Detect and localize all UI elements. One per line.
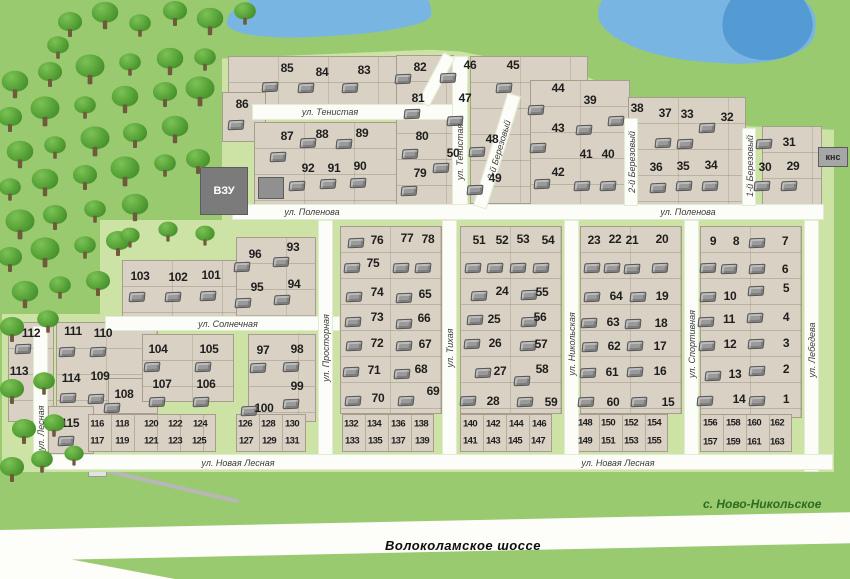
tree-trunk bbox=[138, 30, 142, 37]
tree-trunk bbox=[43, 258, 48, 268]
plot-number: 93 bbox=[287, 240, 300, 254]
plot-number: 92 bbox=[302, 161, 315, 175]
pond bbox=[225, 0, 432, 41]
plot-number: 80 bbox=[416, 129, 429, 143]
house-icon bbox=[345, 341, 362, 352]
tree-trunk bbox=[18, 159, 22, 168]
plot-number: 110 bbox=[94, 326, 112, 340]
house-icon bbox=[233, 262, 250, 273]
plot-number: 114 bbox=[62, 371, 80, 385]
tree-icon bbox=[0, 457, 24, 483]
tree-trunk bbox=[198, 97, 203, 107]
plot-number: 160 bbox=[747, 418, 761, 429]
house-icon bbox=[697, 317, 714, 328]
tree-icon bbox=[7, 141, 33, 170]
plot-number: 15 bbox=[662, 395, 675, 409]
plot-number: 105 bbox=[199, 342, 218, 356]
plot-number: 97 bbox=[257, 343, 270, 357]
house-icon bbox=[748, 396, 765, 407]
house-icon bbox=[349, 178, 366, 189]
highway-road bbox=[0, 512, 850, 562]
plot-number: 58 bbox=[536, 362, 549, 376]
street-label: ул. Новая Лесная bbox=[581, 458, 654, 468]
house-icon bbox=[701, 181, 718, 192]
tree-trunk bbox=[83, 252, 87, 259]
tree-trunk bbox=[163, 170, 167, 177]
tree-icon bbox=[2, 71, 28, 100]
tree-trunk bbox=[40, 466, 44, 473]
plot-number: 66 bbox=[418, 311, 431, 325]
tree-trunk bbox=[10, 396, 14, 404]
house-icon bbox=[747, 339, 764, 350]
plot-number: 28 bbox=[487, 394, 500, 408]
street-label: ул. Тихая bbox=[445, 329, 455, 368]
tree-trunk bbox=[123, 177, 128, 187]
street-label: ул. Поленова bbox=[284, 207, 339, 217]
plot-number: 161 bbox=[747, 437, 761, 448]
plot-number: 107 bbox=[152, 377, 171, 391]
house-icon bbox=[516, 397, 533, 408]
street-label: ул. Тенистая bbox=[455, 124, 465, 180]
tree-icon bbox=[74, 236, 96, 259]
tree-trunk bbox=[58, 292, 62, 299]
tree-icon bbox=[58, 12, 82, 38]
plot-number: 101 bbox=[201, 268, 220, 282]
plot-number: 40 bbox=[602, 147, 615, 161]
street-label: 1-й Березовый bbox=[745, 135, 755, 197]
tree-icon bbox=[0, 107, 22, 133]
house-icon bbox=[273, 295, 290, 306]
house-icon bbox=[466, 185, 483, 196]
house-icon bbox=[623, 264, 640, 275]
plot-number: 72 bbox=[371, 336, 384, 350]
tree-icon bbox=[86, 271, 110, 297]
plot-number: 140 bbox=[463, 419, 477, 430]
tree-icon bbox=[73, 165, 97, 191]
house-icon bbox=[704, 371, 721, 382]
plot-number: 71 bbox=[368, 363, 381, 377]
plot-number: 143 bbox=[486, 436, 500, 447]
plot-number: 9 bbox=[710, 234, 716, 248]
plot-number: 104 bbox=[148, 342, 167, 356]
plot-number: 78 bbox=[422, 232, 435, 246]
tree-icon bbox=[6, 209, 35, 240]
house-icon bbox=[533, 179, 550, 190]
plot-number: 108 bbox=[114, 387, 133, 401]
plot-number: 125 bbox=[192, 436, 206, 447]
house-icon bbox=[439, 73, 456, 84]
house-icon bbox=[747, 286, 764, 297]
plot-number: 5 bbox=[783, 281, 789, 295]
plot-number: 21 bbox=[626, 233, 639, 247]
tree-trunk bbox=[13, 89, 17, 98]
house-icon bbox=[87, 394, 104, 405]
house-icon bbox=[344, 317, 361, 328]
plot-number: 90 bbox=[354, 159, 367, 173]
tree-icon bbox=[162, 116, 188, 145]
tree-crown bbox=[31, 237, 60, 260]
house-icon bbox=[629, 292, 646, 303]
house-icon bbox=[400, 186, 417, 197]
tree-trunk bbox=[208, 26, 212, 35]
house-icon bbox=[401, 149, 418, 160]
tree-trunk bbox=[42, 388, 46, 395]
house-icon bbox=[394, 74, 411, 85]
plot-number: 131 bbox=[285, 436, 299, 447]
plot-number: 152 bbox=[624, 418, 638, 429]
tree-icon bbox=[33, 372, 55, 395]
house-icon bbox=[297, 83, 314, 94]
house-icon bbox=[468, 147, 485, 158]
plot-number: 103 bbox=[130, 269, 149, 283]
plot-number: 29 bbox=[787, 159, 800, 173]
site-plan-map: ВЗУкнс8584838687888992919082464544814743… bbox=[0, 0, 850, 579]
street-label: ул. Просторная bbox=[321, 314, 331, 382]
street-label: ул. Никольская bbox=[567, 312, 577, 375]
tree-trunk bbox=[83, 182, 87, 190]
tree-icon bbox=[157, 48, 183, 77]
tree-trunk bbox=[93, 147, 98, 157]
street-label: ул. Поленова bbox=[660, 207, 715, 217]
plot-number: 139 bbox=[415, 436, 429, 447]
plot-number: 25 bbox=[488, 312, 501, 326]
plot-number: 156 bbox=[703, 418, 717, 429]
plot-number: 82 bbox=[414, 60, 427, 74]
plot-number: 52 bbox=[496, 233, 509, 247]
house-icon bbox=[143, 362, 160, 373]
tree-trunk bbox=[10, 334, 14, 342]
tree-icon bbox=[112, 86, 138, 115]
plot-number: 126 bbox=[238, 419, 252, 430]
plot-number: 65 bbox=[419, 287, 432, 301]
plot-number: 127 bbox=[239, 436, 253, 447]
plot-number: 77 bbox=[401, 231, 414, 245]
tree-icon bbox=[195, 226, 214, 247]
house-icon bbox=[698, 341, 715, 352]
plot-number: 39 bbox=[584, 93, 597, 107]
plot-number: 42 bbox=[552, 165, 565, 179]
tree-trunk bbox=[96, 288, 100, 296]
plot-number: 57 bbox=[535, 337, 548, 351]
house-icon bbox=[395, 293, 412, 304]
house-icon bbox=[486, 263, 503, 274]
plot-number: 27 bbox=[494, 364, 507, 378]
house-icon bbox=[164, 292, 181, 303]
tree-trunk bbox=[72, 459, 75, 465]
house-icon bbox=[532, 263, 549, 274]
tree-trunk bbox=[22, 436, 26, 444]
tree-trunk bbox=[88, 75, 93, 85]
plot-number: 95 bbox=[251, 280, 264, 294]
tree-trunk bbox=[243, 18, 247, 25]
tree-trunk bbox=[48, 79, 52, 87]
plot-number: 134 bbox=[367, 419, 381, 430]
tree-icon bbox=[129, 14, 151, 37]
house-icon bbox=[341, 83, 358, 94]
plot-number: 120 bbox=[144, 419, 158, 430]
tree-trunk bbox=[18, 230, 23, 240]
street-label: ул. Новая Лесная bbox=[201, 458, 274, 468]
house-icon bbox=[192, 397, 209, 408]
tree-trunk bbox=[196, 166, 200, 174]
house-icon bbox=[403, 109, 420, 120]
plot-number: 88 bbox=[316, 127, 329, 141]
house-icon bbox=[335, 139, 352, 150]
house-icon bbox=[128, 292, 145, 303]
plot-number: 102 bbox=[168, 270, 187, 284]
street-label: ул. Тенистая bbox=[302, 107, 358, 117]
plot-number: 16 bbox=[654, 364, 667, 378]
tree-icon bbox=[0, 247, 22, 273]
plot-number: 149 bbox=[578, 436, 592, 447]
tree-icon bbox=[0, 178, 21, 201]
tree-icon bbox=[43, 205, 67, 231]
tree-trunk bbox=[128, 241, 131, 247]
house-icon bbox=[579, 368, 596, 379]
tree-icon bbox=[12, 419, 36, 445]
tree-crown bbox=[111, 156, 140, 179]
house-icon bbox=[651, 263, 668, 274]
plot-number: 113 bbox=[10, 364, 28, 378]
plot-number: 8 bbox=[733, 234, 739, 248]
house-icon bbox=[624, 319, 641, 330]
plot-number: 1 bbox=[783, 392, 789, 406]
tree-icon bbox=[186, 149, 210, 175]
tree-trunk bbox=[116, 248, 120, 256]
vzu-station-label: ВЗУ bbox=[213, 185, 234, 197]
plot-number: 30 bbox=[759, 160, 772, 174]
plot-number: 18 bbox=[655, 316, 668, 330]
plot-number: 129 bbox=[262, 436, 276, 447]
plot-number: 138 bbox=[414, 419, 428, 430]
tree-trunk bbox=[123, 104, 127, 113]
plot-number: 157 bbox=[703, 437, 717, 448]
tree-icon bbox=[122, 194, 148, 223]
tree-icon bbox=[92, 2, 118, 31]
plot-number: 137 bbox=[391, 436, 405, 447]
tree-trunk bbox=[128, 69, 132, 76]
plot-number: 146 bbox=[532, 419, 546, 430]
tree-trunk bbox=[203, 239, 206, 245]
tree-icon bbox=[158, 222, 177, 243]
house-icon bbox=[780, 181, 797, 192]
plot-number: 13 bbox=[729, 367, 742, 381]
plot-number: 64 bbox=[610, 289, 623, 303]
tree-trunk bbox=[53, 152, 57, 159]
tree-icon bbox=[47, 36, 69, 59]
kns-station-label: кнс bbox=[826, 152, 841, 162]
house-icon bbox=[748, 238, 765, 249]
tree-trunk bbox=[10, 474, 14, 482]
plot-number: 35 bbox=[677, 159, 690, 173]
tree-trunk bbox=[8, 264, 12, 272]
tree-trunk bbox=[166, 235, 169, 241]
house-icon bbox=[474, 368, 491, 379]
house-icon bbox=[654, 138, 671, 149]
plot-number: 60 bbox=[607, 395, 620, 409]
tree-icon bbox=[44, 136, 66, 159]
tree-icon bbox=[43, 414, 65, 437]
house-icon bbox=[344, 396, 361, 407]
tree-icon bbox=[32, 169, 58, 198]
plot-number: 106 bbox=[196, 377, 215, 391]
plot-number: 132 bbox=[344, 419, 358, 430]
street-label: ул. Солнечная bbox=[198, 319, 258, 329]
house-icon bbox=[342, 367, 359, 378]
tree-trunk bbox=[173, 18, 177, 26]
plot-number: 109 bbox=[90, 369, 109, 383]
house-icon bbox=[272, 257, 289, 268]
plot-number: 11 bbox=[723, 312, 735, 326]
house-icon bbox=[466, 315, 483, 326]
house-icon bbox=[261, 82, 278, 93]
tree-icon bbox=[153, 82, 177, 108]
house-icon bbox=[343, 263, 360, 274]
house-icon bbox=[699, 292, 716, 303]
plot-number: 34 bbox=[705, 158, 718, 172]
plot-number: 84 bbox=[316, 65, 329, 79]
house-icon bbox=[103, 403, 120, 414]
plot-number: 136 bbox=[391, 419, 405, 430]
house-icon bbox=[89, 347, 106, 358]
street-label: ул. Лесная bbox=[36, 406, 46, 451]
house-icon bbox=[299, 138, 316, 149]
house-icon bbox=[282, 399, 299, 410]
house-icon bbox=[527, 105, 544, 116]
plot-number: 20 bbox=[656, 232, 669, 246]
plot-number: 155 bbox=[647, 436, 661, 447]
house-icon bbox=[581, 342, 598, 353]
plot-number: 14 bbox=[733, 392, 746, 406]
house-icon bbox=[397, 396, 414, 407]
plot-number: 2 bbox=[783, 362, 789, 376]
plot-number: 33 bbox=[681, 107, 694, 121]
house-icon bbox=[746, 313, 763, 324]
plot-number: 45 bbox=[507, 58, 520, 72]
house-icon bbox=[696, 396, 713, 407]
house-icon bbox=[345, 292, 362, 303]
plot-number: 117 bbox=[90, 436, 104, 447]
plot-number: 6 bbox=[782, 262, 788, 276]
tree-trunk bbox=[133, 212, 137, 221]
plot-number: 128 bbox=[261, 419, 275, 430]
house-icon bbox=[698, 123, 715, 134]
tree-trunk bbox=[8, 194, 12, 201]
plot-number: 147 bbox=[531, 436, 545, 447]
tree-trunk bbox=[43, 187, 47, 196]
house-icon bbox=[607, 116, 624, 127]
plot-number: 91 bbox=[328, 161, 341, 175]
plot-number: 162 bbox=[770, 418, 784, 429]
tree-icon bbox=[119, 53, 141, 76]
tree-trunk bbox=[163, 99, 167, 107]
utility-box bbox=[258, 177, 284, 199]
tree-trunk bbox=[43, 117, 48, 127]
plot-number: 10 bbox=[724, 289, 737, 303]
tree-trunk bbox=[173, 134, 177, 143]
plot-number: 74 bbox=[371, 285, 384, 299]
plot-number: 119 bbox=[115, 436, 129, 447]
plot-number: 54 bbox=[542, 233, 555, 247]
house-icon bbox=[58, 347, 75, 358]
house-icon bbox=[395, 319, 412, 330]
plot-number: 83 bbox=[358, 63, 371, 77]
street-road bbox=[45, 454, 833, 470]
plot-number: 17 bbox=[654, 339, 667, 353]
house-icon bbox=[459, 396, 476, 407]
house-icon bbox=[269, 152, 286, 163]
house-icon bbox=[282, 362, 299, 373]
plot-number: 56 bbox=[534, 310, 547, 324]
house-icon bbox=[234, 298, 251, 309]
plot-number: 87 bbox=[281, 129, 294, 143]
plot-number: 158 bbox=[726, 418, 740, 429]
plot-number: 151 bbox=[601, 436, 615, 447]
plot-number: 19 bbox=[656, 289, 669, 303]
house-icon bbox=[432, 163, 449, 174]
plot-number: 4 bbox=[783, 310, 789, 324]
house-icon bbox=[626, 367, 643, 378]
house-icon bbox=[148, 397, 165, 408]
house-icon bbox=[748, 264, 765, 275]
plot-number: 85 bbox=[281, 61, 294, 75]
plot-number: 86 bbox=[236, 97, 249, 111]
house-icon bbox=[194, 362, 211, 373]
plot-number: 142 bbox=[486, 419, 500, 430]
tree-icon bbox=[31, 96, 60, 127]
house-icon bbox=[227, 120, 244, 131]
house-icon bbox=[470, 291, 487, 302]
tree-trunk bbox=[103, 20, 107, 29]
plot-number: 133 bbox=[345, 436, 359, 447]
tree-trunk bbox=[53, 222, 57, 230]
plot-number: 99 bbox=[291, 379, 304, 393]
house-icon bbox=[748, 366, 765, 377]
tree-icon bbox=[186, 76, 215, 107]
plot-number: 62 bbox=[608, 339, 621, 353]
plot-number: 135 bbox=[368, 436, 382, 447]
tree-crown bbox=[6, 209, 35, 232]
plot-number: 100 bbox=[254, 401, 273, 415]
tree-icon bbox=[38, 62, 62, 88]
tree-trunk bbox=[52, 430, 56, 437]
plot-number: 76 bbox=[371, 233, 384, 247]
house-icon bbox=[599, 181, 616, 192]
plot-number: 24 bbox=[496, 284, 509, 298]
tree-trunk bbox=[8, 124, 12, 132]
house-icon bbox=[699, 263, 716, 274]
house-icon bbox=[649, 183, 666, 194]
house-icon bbox=[529, 143, 546, 154]
plot-number: 36 bbox=[650, 160, 663, 174]
tree-trunk bbox=[23, 299, 27, 308]
house-icon bbox=[199, 291, 216, 302]
house-icon bbox=[583, 263, 600, 274]
tree-icon bbox=[154, 154, 176, 177]
plot-number: 53 bbox=[517, 232, 530, 246]
plot-number: 141 bbox=[463, 436, 477, 447]
plot-number: 59 bbox=[545, 395, 558, 409]
house-icon bbox=[755, 139, 772, 150]
tree-icon bbox=[0, 379, 24, 405]
tree-icon bbox=[31, 237, 60, 268]
house-icon bbox=[753, 181, 770, 192]
tree-icon bbox=[49, 276, 71, 299]
house-icon bbox=[392, 263, 409, 274]
plot-number: 79 bbox=[414, 166, 427, 180]
plot-number: 89 bbox=[356, 126, 369, 140]
house-icon bbox=[513, 376, 530, 387]
